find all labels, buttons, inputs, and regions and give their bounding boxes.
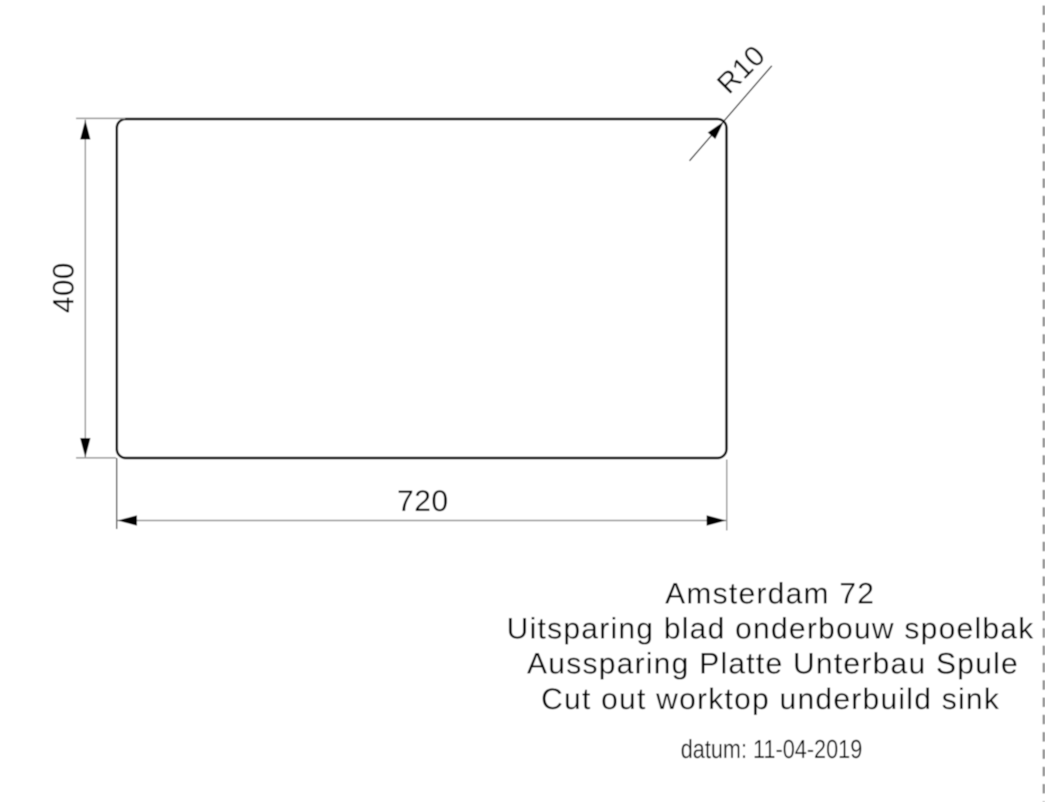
svg-text:720: 720 [397, 485, 449, 518]
svg-text:Amsterdam 72: Amsterdam 72 [665, 578, 875, 611]
svg-text:Uitsparing blad onderbouw spoe: Uitsparing blad onderbouw spoelbak [507, 613, 1035, 646]
svg-text:400: 400 [48, 262, 81, 313]
svg-text:Cut out worktop underbuild sin: Cut out worktop underbuild sink [541, 683, 1000, 716]
svg-text:datum: 11-04-2019: datum: 11-04-2019 [681, 736, 863, 764]
svg-text:Aussparing Platte Unterbau Spu: Aussparing Platte Unterbau Spule [527, 648, 1019, 681]
